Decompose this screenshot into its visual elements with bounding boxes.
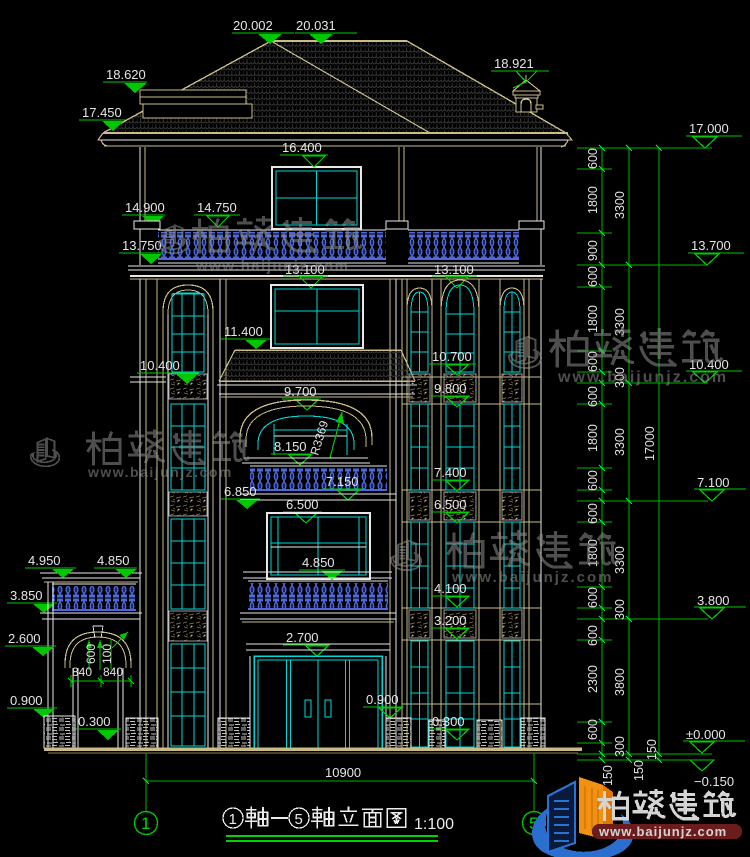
svg-text:1:100: 1:100: [414, 816, 454, 833]
svg-text:13.750: 13.750: [122, 238, 162, 253]
svg-text:18.620: 18.620: [106, 67, 146, 82]
svg-text:150: 150: [632, 760, 646, 781]
svg-text:600: 600: [84, 644, 98, 664]
svg-text:6.500: 6.500: [286, 497, 319, 512]
svg-text:600: 600: [586, 503, 600, 524]
svg-text:10.400: 10.400: [140, 358, 180, 373]
svg-text:17.000: 17.000: [689, 121, 729, 136]
svg-text:9.700: 9.700: [284, 384, 317, 399]
svg-text:3.200: 3.200: [434, 613, 467, 628]
svg-text:3.800: 3.800: [697, 593, 730, 608]
svg-text:10900: 10900: [325, 765, 361, 780]
svg-text:1: 1: [141, 814, 150, 833]
svg-text:14.750: 14.750: [197, 200, 237, 215]
svg-text:1800: 1800: [586, 186, 600, 214]
svg-text:600: 600: [586, 386, 600, 407]
svg-text:0.900: 0.900: [366, 692, 399, 707]
svg-text:20.002: 20.002: [233, 18, 273, 33]
svg-text:1800: 1800: [586, 305, 600, 333]
svg-text:4.850: 4.850: [302, 555, 335, 570]
svg-text:www.baijunjz.com: www.baijunjz.com: [598, 824, 727, 839]
svg-text:20.031: 20.031: [296, 18, 336, 33]
svg-text:300: 300: [613, 736, 627, 757]
svg-text:600: 600: [586, 148, 600, 169]
svg-text:17.450: 17.450: [82, 105, 122, 120]
svg-text:600: 600: [586, 719, 600, 740]
svg-text:18.921: 18.921: [494, 56, 534, 71]
svg-text:8.150: 8.150: [274, 439, 307, 454]
svg-text:4.850: 4.850: [97, 553, 130, 568]
svg-text:10.700: 10.700: [432, 349, 472, 364]
svg-text:2.600: 2.600: [8, 631, 41, 646]
svg-text:600: 600: [586, 587, 600, 608]
svg-text:600: 600: [586, 266, 600, 287]
svg-text:4.950: 4.950: [28, 553, 61, 568]
svg-text:600: 600: [586, 625, 600, 646]
svg-text:150: 150: [645, 739, 659, 760]
svg-text:17000: 17000: [643, 426, 657, 461]
svg-text:3800: 3800: [613, 668, 627, 696]
svg-text:0.900: 0.900: [10, 693, 43, 708]
svg-text:1: 1: [229, 811, 237, 828]
svg-text:0.300: 0.300: [78, 714, 111, 729]
svg-text:3300: 3300: [613, 546, 627, 574]
svg-text:6.500: 6.500: [434, 497, 467, 512]
svg-text:7.100: 7.100: [697, 475, 730, 490]
svg-text:3300: 3300: [613, 428, 627, 456]
svg-text:14.900: 14.900: [125, 200, 165, 215]
svg-text:www.baijunjz.com: www.baijunjz.com: [87, 464, 233, 480]
svg-text:3300: 3300: [613, 191, 627, 219]
svg-text:600: 600: [586, 470, 600, 491]
svg-text:www.baijunjz.com: www.baijunjz.com: [557, 369, 728, 386]
svg-text:11.400: 11.400: [224, 324, 263, 339]
svg-text:300: 300: [613, 599, 627, 620]
svg-text:2.700: 2.700: [286, 630, 319, 645]
svg-text:150: 150: [601, 765, 615, 786]
svg-text:840: 840: [72, 665, 92, 679]
svg-text:840: 840: [103, 665, 123, 679]
svg-text:www.baijunjz.com: www.baijunjz.com: [451, 569, 613, 586]
svg-text:±0.000: ±0.000: [686, 727, 726, 742]
svg-text:www.baijunjz.com: www.baijunjz.com: [195, 258, 349, 275]
svg-text:−0.150: −0.150: [694, 774, 734, 789]
svg-text:13.100: 13.100: [434, 262, 474, 277]
svg-text:5: 5: [295, 811, 303, 828]
svg-text:100: 100: [100, 644, 114, 664]
svg-text:3.850: 3.850: [10, 588, 43, 603]
svg-text:2300: 2300: [586, 665, 600, 693]
svg-text:9.800: 9.800: [434, 381, 467, 396]
svg-text:13.700: 13.700: [691, 238, 731, 253]
svg-text:7.150: 7.150: [326, 474, 359, 489]
svg-text:16.400: 16.400: [282, 140, 322, 155]
svg-text:6.850: 6.850: [224, 484, 257, 499]
svg-text:7.400: 7.400: [434, 465, 467, 480]
svg-text:900: 900: [586, 240, 600, 261]
svg-text:1800: 1800: [586, 424, 600, 452]
